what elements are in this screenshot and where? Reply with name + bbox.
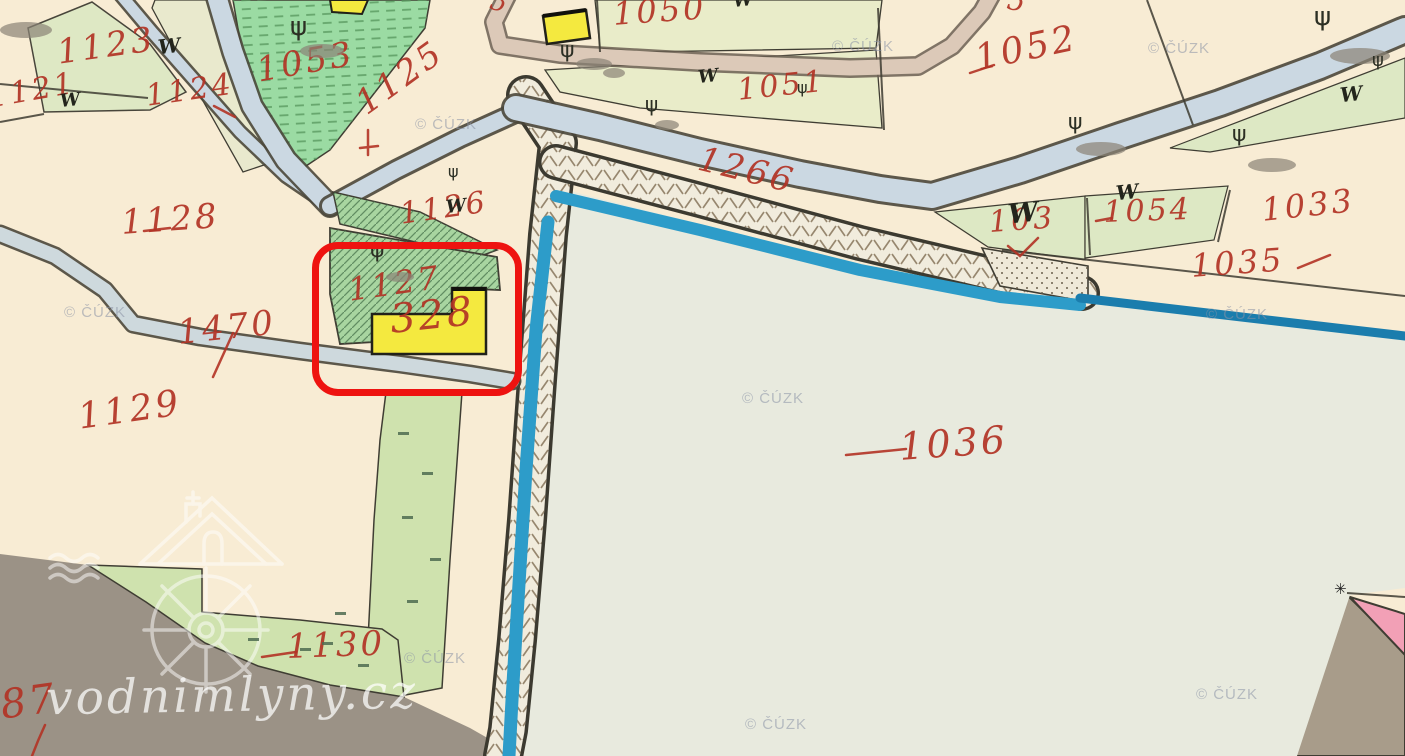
parcel-label-1130: 1130	[286, 627, 386, 664]
meadow-symbol: W	[157, 35, 181, 57]
building-yellow-top-edge	[330, 0, 368, 14]
grass-dash-symbol	[248, 638, 259, 641]
tree-symbol: ψ	[1068, 112, 1083, 134]
copyright-watermark: © ČÚZK	[832, 38, 894, 55]
tree-symbol: ψ	[1372, 52, 1384, 70]
meadow-symbol: W	[732, 0, 754, 11]
tree-symbol: ψ	[448, 164, 459, 180]
tree-symbol: ψ	[645, 94, 658, 114]
meadow-symbol: W	[445, 197, 467, 217]
grass-dash-symbol	[407, 600, 418, 603]
meadow-symbol: W	[697, 67, 719, 87]
copyright-watermark: © ČÚZK	[742, 390, 804, 407]
parcel-label-1128: 1128	[120, 199, 221, 240]
meadow-symbol: W	[1339, 83, 1363, 105]
tree-symbol: ψ	[560, 40, 575, 62]
parcel-label-1035: 1035	[1190, 243, 1285, 281]
grass-dash-symbol	[402, 516, 413, 519]
tree-shadow	[1248, 158, 1296, 172]
brand-watermark: vodnimlyny.cz	[46, 665, 419, 726]
copyright-watermark: © ČÚZK	[1148, 40, 1210, 57]
grass-dash-symbol	[422, 472, 433, 475]
tree-shadow	[655, 120, 679, 130]
tree-symbol: ψ	[290, 14, 307, 40]
grass-dash-symbol	[335, 612, 346, 615]
parcel-label-1470: 1470	[176, 306, 278, 350]
copyright-watermark: © ČÚZK	[1206, 306, 1268, 323]
survey-star-symbol: ✳	[1334, 580, 1347, 598]
meadow-symbol: W	[59, 91, 81, 111]
copyright-watermark: © ČÚZK	[745, 716, 807, 733]
parcel-label-1036: 1036	[898, 420, 1009, 465]
grass-dash-symbol	[322, 642, 333, 645]
copyright-watermark: © ČÚZK	[1196, 686, 1258, 703]
parcel-label-1050: 1050	[612, 0, 707, 30]
grass-dash-symbol	[430, 558, 441, 561]
tree-shadow	[1076, 142, 1126, 156]
grass-dash-symbol	[398, 432, 409, 435]
parcel-label-1033: 1033	[1260, 184, 1356, 226]
meadow-symbol: W	[1007, 198, 1040, 228]
grass-dash-symbol	[300, 648, 311, 651]
tree-shadow	[603, 68, 625, 78]
copyright-watermark: © ČÚZK	[415, 116, 477, 133]
cadastral-map-view: 1123112111241053112510501051105212661128…	[0, 0, 1405, 756]
highlight-box	[312, 242, 522, 396]
tree-shadow	[0, 22, 52, 38]
map-canvas	[0, 0, 1405, 756]
tree-symbol: ψ	[1232, 124, 1247, 146]
parcel-label-1051: 1051	[736, 67, 827, 106]
tree-shadow	[300, 44, 344, 58]
copyright-watermark: © ČÚZK	[64, 304, 126, 321]
tree-symbol: ψ	[1314, 4, 1331, 30]
tree-symbol: ψ	[797, 80, 808, 96]
meadow-symbol: W	[1115, 181, 1139, 203]
